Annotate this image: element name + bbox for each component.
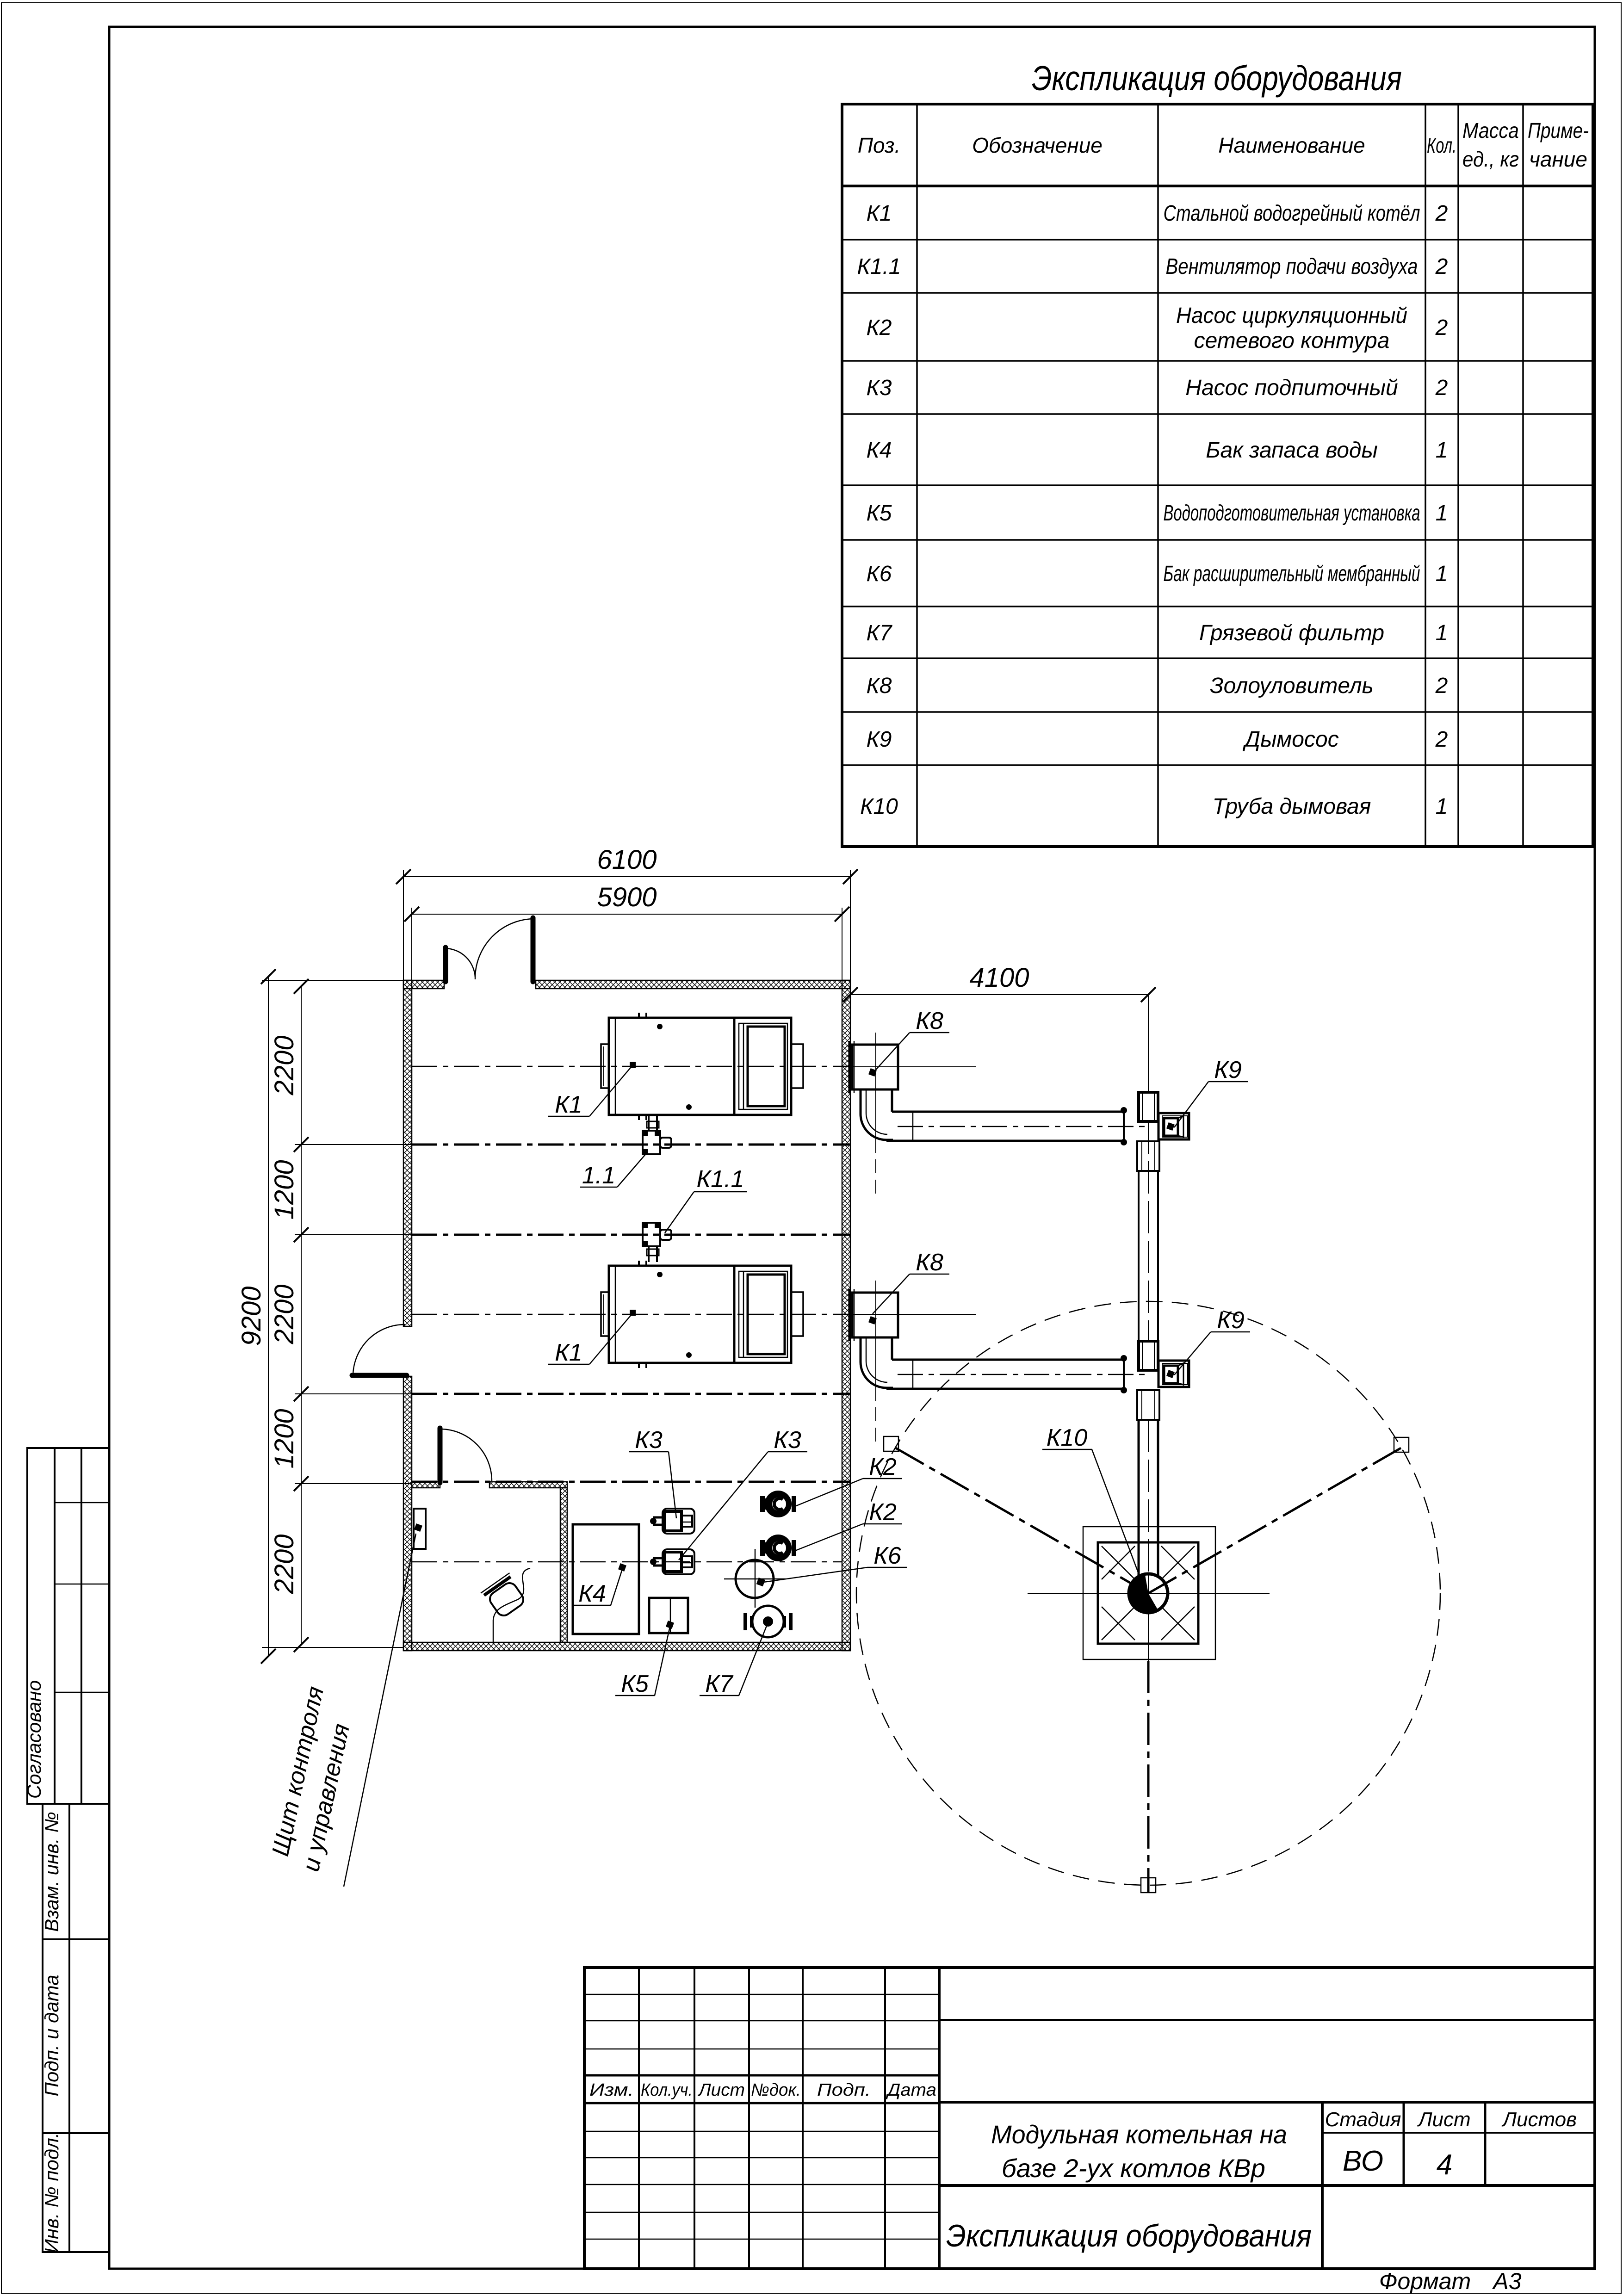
svg-text:Бак расширительный мембранный: Бак расширительный мембранный [1164, 562, 1420, 586]
svg-text:2: 2 [1435, 376, 1448, 400]
svg-text:Экспликация оборудования: Экспликация оборудования [946, 2218, 1312, 2253]
svg-text:К10: К10 [1047, 1424, 1088, 1451]
svg-text:Кол.: Кол. [1427, 133, 1456, 157]
svg-text:1: 1 [1436, 794, 1448, 819]
svg-text:К5: К5 [621, 1671, 649, 1697]
svg-text:2: 2 [1435, 674, 1448, 698]
svg-text:1.1: 1.1 [582, 1162, 615, 1189]
svg-text:К10: К10 [860, 794, 898, 819]
svg-text:К6: К6 [867, 562, 892, 586]
svg-text:К8: К8 [916, 1249, 943, 1276]
svg-text:К3: К3 [774, 1427, 801, 1454]
svg-text:К9: К9 [1217, 1307, 1245, 1334]
svg-text:Изм.: Изм. [589, 2080, 634, 2100]
svg-text:4: 4 [1437, 2149, 1452, 2181]
svg-text:2: 2 [1435, 201, 1448, 226]
svg-text:Кол.уч.: Кол.уч. [641, 2080, 693, 2100]
svg-text:Труба дымовая: Труба дымовая [1213, 794, 1371, 819]
svg-text:Масса: Масса [1462, 118, 1519, 142]
svg-text:2: 2 [1435, 727, 1448, 752]
svg-text:К8: К8 [916, 1008, 943, 1034]
svg-text:К2: К2 [869, 1499, 897, 1526]
svg-text:Подп. и дата: Подп. и дата [41, 1975, 62, 2097]
svg-text:2200: 2200 [269, 1534, 299, 1594]
svg-text:сетевого контура: сетевого контура [1194, 328, 1390, 353]
svg-text:К1.1: К1.1 [697, 1166, 744, 1193]
svg-text:К6: К6 [873, 1542, 901, 1569]
svg-text:К9: К9 [1214, 1057, 1242, 1083]
svg-text:К4: К4 [578, 1580, 606, 1607]
svg-text:Подп.: Подп. [817, 2080, 871, 2100]
svg-text:Лист: Лист [1417, 2108, 1470, 2131]
svg-text:1: 1 [1436, 562, 1448, 586]
svg-text:К2: К2 [869, 1454, 897, 1480]
svg-text:№док.: №док. [751, 2080, 801, 2100]
svg-text:Дата: Дата [886, 2080, 936, 2100]
svg-text:Грязевой фильтр: Грязевой фильтр [1199, 621, 1384, 645]
svg-text:Водоподготовительная установка: Водоподготовительная установка [1164, 501, 1420, 526]
svg-text:Формат: Формат [1379, 2268, 1471, 2294]
svg-text:Насос подпиточный: Насос подпиточный [1185, 376, 1398, 400]
svg-text:1: 1 [1436, 501, 1448, 526]
svg-text:К3: К3 [867, 376, 892, 400]
svg-text:Наименование: Наименование [1218, 133, 1365, 157]
svg-text:К9: К9 [867, 727, 892, 752]
svg-text:2200: 2200 [269, 1035, 299, 1095]
svg-text:1200: 1200 [269, 1160, 299, 1219]
svg-text:К2: К2 [867, 316, 892, 340]
svg-text:К1: К1 [555, 1339, 582, 1366]
svg-text:1: 1 [1436, 621, 1448, 645]
svg-text:А3: А3 [1492, 2268, 1521, 2294]
svg-text:Модульная котельная на: Модульная котельная на [991, 2120, 1287, 2149]
svg-text:К7: К7 [867, 621, 893, 645]
svg-text:4100: 4100 [969, 963, 1029, 993]
svg-text:Стадия: Стадия [1325, 2108, 1401, 2131]
svg-text:Дымосос: Дымосос [1242, 727, 1338, 752]
svg-text:чание: чание [1529, 147, 1587, 171]
svg-text:Бак запаса воды: Бак запаса воды [1206, 438, 1378, 463]
svg-text:К1: К1 [867, 201, 892, 226]
svg-text:К1.1: К1.1 [857, 254, 901, 279]
svg-text:1200: 1200 [269, 1409, 299, 1468]
svg-text:6100: 6100 [597, 845, 657, 875]
svg-text:ВО: ВО [1343, 2145, 1383, 2177]
svg-text:Экспликация оборудования: Экспликация оборудования [1032, 59, 1402, 98]
svg-text:Листов: Листов [1501, 2108, 1577, 2131]
svg-text:5900: 5900 [597, 882, 657, 912]
svg-text:К7: К7 [705, 1671, 734, 1697]
svg-text:1: 1 [1436, 438, 1448, 463]
svg-text:2: 2 [1435, 254, 1448, 279]
svg-text:Золоуловитель: Золоуловитель [1210, 674, 1374, 698]
svg-text:Стальной водогрейный котёл: Стальной водогрейный котёл [1164, 201, 1420, 226]
svg-text:2: 2 [1435, 316, 1448, 340]
svg-text:Инв. № подл.: Инв. № подл. [41, 2133, 62, 2253]
svg-text:К8: К8 [867, 674, 892, 698]
svg-text:К1: К1 [555, 1091, 582, 1118]
svg-text:Насос циркуляционный: Насос циркуляционный [1176, 303, 1407, 328]
svg-text:Поз.: Поз. [858, 133, 901, 157]
svg-text:Приме-: Приме- [1528, 118, 1589, 142]
svg-text:К4: К4 [867, 438, 892, 463]
svg-text:9200: 9200 [236, 1286, 266, 1346]
svg-text:К3: К3 [635, 1427, 663, 1454]
svg-text:Согласовано: Согласовано [23, 1680, 45, 1799]
svg-text:Вентилятор подачи воздуха: Вентилятор подачи воздуха [1166, 254, 1418, 279]
svg-text:Лист: Лист [697, 2080, 745, 2100]
svg-text:Взам. инв. №: Взам. инв. № [41, 1812, 62, 1932]
svg-text:базе 2-ух котлов КВр: базе 2-ух котлов КВр [1002, 2154, 1265, 2183]
svg-text:К5: К5 [867, 501, 892, 526]
svg-text:ед., кг: ед., кг [1462, 147, 1519, 171]
svg-text:Обозначение: Обозначение [972, 133, 1103, 157]
svg-text:2200: 2200 [269, 1284, 299, 1344]
